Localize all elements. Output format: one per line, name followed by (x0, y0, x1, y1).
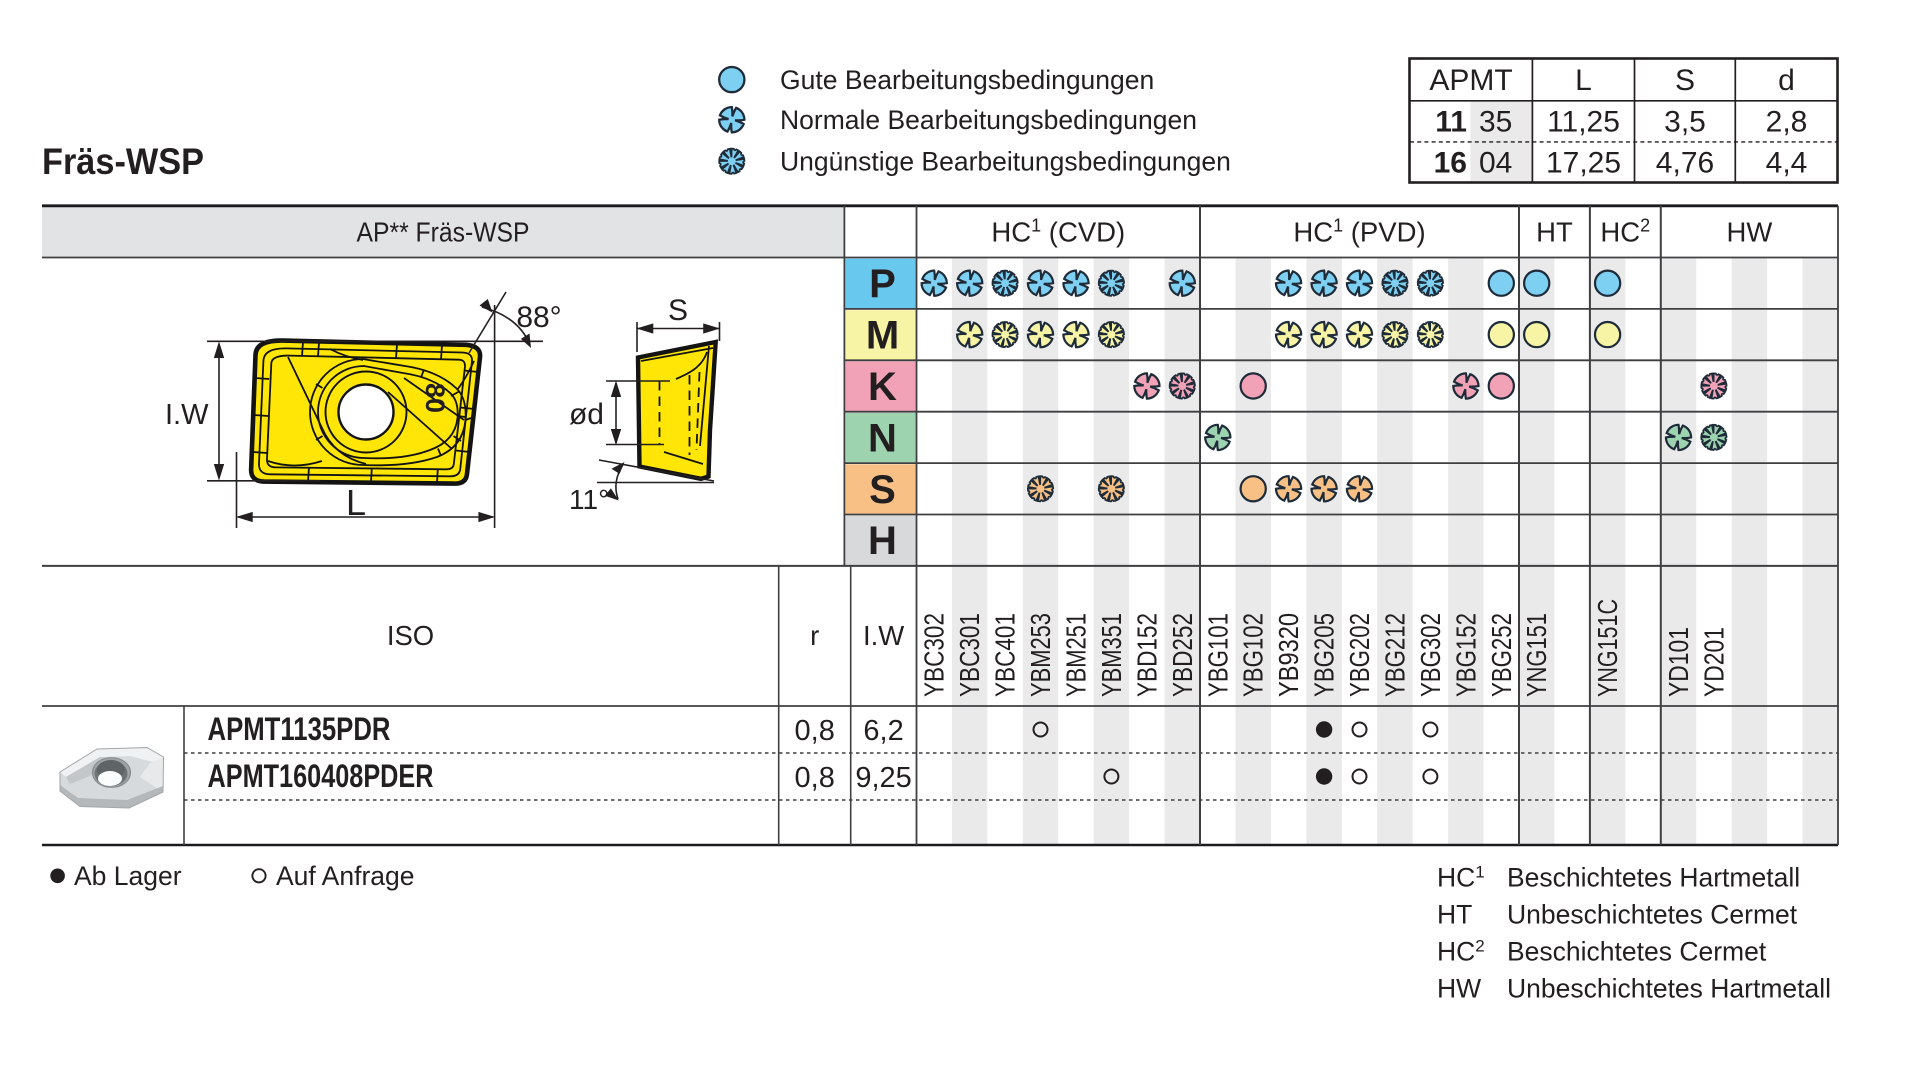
svg-text:16: 16 (1434, 147, 1467, 180)
svg-text:YB9320: YB9320 (1273, 613, 1304, 697)
svg-text:Gute Bearbeitungsbedingungen: Gute Bearbeitungsbedingungen (780, 65, 1154, 95)
svg-text:S: S (1675, 64, 1695, 97)
svg-text:APMT: APMT (1429, 64, 1512, 97)
svg-text:r: r (810, 620, 819, 651)
svg-text:ød: ød (569, 398, 604, 431)
svg-text:APMT1135PDR: APMT1135PDR (208, 711, 391, 747)
svg-text:Unbeschichtetes Hartmetall: Unbeschichtetes Hartmetall (1507, 974, 1831, 1004)
svg-text:YBM253: YBM253 (1025, 613, 1056, 697)
svg-text:YBC401: YBC401 (990, 613, 1021, 697)
svg-text:M: M (866, 314, 899, 358)
svg-text:YBD252: YBD252 (1167, 613, 1198, 697)
svg-text:I.W: I.W (863, 620, 904, 651)
svg-text:Beschichtetes Cermet: Beschichtetes Cermet (1507, 937, 1767, 967)
svg-text:Normale Bearbeitungsbedingunge: Normale Bearbeitungsbedingungen (780, 105, 1197, 135)
svg-text:11: 11 (1435, 106, 1467, 139)
svg-text:YD201: YD201 (1698, 627, 1729, 697)
svg-text:88°: 88° (516, 301, 561, 334)
svg-text:YD101: YD101 (1663, 627, 1694, 697)
svg-text:YNG151: YNG151 (1521, 613, 1552, 697)
svg-text:0,8: 0,8 (795, 715, 835, 747)
svg-text:ISO: ISO (387, 620, 434, 651)
svg-text:YBG202: YBG202 (1344, 613, 1375, 697)
svg-text:Fräs-WSP: Fräs-WSP (42, 140, 204, 182)
svg-text:P: P (869, 262, 896, 306)
svg-text:0,8: 0,8 (795, 762, 835, 794)
svg-text:S: S (869, 468, 896, 512)
svg-text:Ungünstige Bearbeitungsbedingu: Ungünstige Bearbeitungsbedingungen (780, 147, 1231, 177)
svg-text:9,25: 9,25 (855, 762, 911, 794)
svg-text:3,5: 3,5 (1664, 106, 1706, 139)
svg-text:YBM251: YBM251 (1061, 613, 1092, 697)
svg-text:HC1 (PVD): HC1 (PVD) (1293, 216, 1425, 248)
svg-text:11,25: 11,25 (1547, 106, 1620, 139)
svg-text:S: S (668, 294, 688, 327)
svg-text:YBG101: YBG101 (1202, 613, 1233, 697)
svg-text:HW: HW (1437, 974, 1481, 1004)
svg-text:YBG302: YBG302 (1415, 613, 1446, 697)
svg-text:YNG151C: YNG151C (1592, 599, 1623, 697)
svg-text:APMT160408PDER: APMT160408PDER (208, 758, 434, 794)
svg-text:I.W: I.W (165, 399, 209, 431)
svg-text:80: 80 (420, 383, 450, 413)
svg-text:L: L (346, 482, 366, 523)
svg-text:HC1 (CVD): HC1 (CVD) (991, 216, 1125, 248)
svg-text:YBC302: YBC302 (919, 613, 950, 697)
svg-text:K: K (868, 365, 897, 409)
svg-text:HW: HW (1726, 217, 1772, 248)
svg-text:YBD152: YBD152 (1131, 613, 1162, 697)
svg-text:4,76: 4,76 (1656, 147, 1714, 180)
svg-text:YBC301: YBC301 (954, 613, 985, 697)
svg-text:YBG102: YBG102 (1238, 613, 1269, 697)
svg-text:YBG212: YBG212 (1380, 613, 1411, 697)
svg-text:YBM351: YBM351 (1096, 613, 1127, 697)
svg-text:HT: HT (1536, 217, 1573, 248)
svg-text:YBG152: YBG152 (1450, 613, 1481, 697)
svg-text:Auf Anfrage: Auf Anfrage (276, 861, 415, 891)
svg-text:Ab Lager: Ab Lager (74, 861, 182, 891)
svg-text:04: 04 (1479, 147, 1512, 180)
svg-text:4,4: 4,4 (1766, 147, 1808, 180)
svg-text:H: H (868, 519, 897, 563)
svg-text:6,2: 6,2 (863, 715, 903, 747)
svg-text:L: L (1575, 64, 1592, 97)
svg-text:17,25: 17,25 (1546, 147, 1621, 180)
svg-text:YBG205: YBG205 (1309, 613, 1340, 697)
svg-text:11°: 11° (569, 484, 609, 515)
svg-text:Unbeschichtetes Cermet: Unbeschichtetes Cermet (1507, 900, 1798, 930)
svg-text:AP** Fräs-WSP: AP** Fräs-WSP (357, 217, 530, 248)
svg-text:2,8: 2,8 (1766, 106, 1808, 139)
svg-text:Beschichtetes Hartmetall: Beschichtetes Hartmetall (1507, 863, 1800, 893)
svg-text:YBG252: YBG252 (1486, 613, 1517, 697)
svg-text:d: d (1778, 64, 1795, 97)
svg-text:HT: HT (1437, 900, 1472, 930)
svg-text:N: N (868, 416, 897, 460)
svg-text:35: 35 (1479, 106, 1512, 139)
